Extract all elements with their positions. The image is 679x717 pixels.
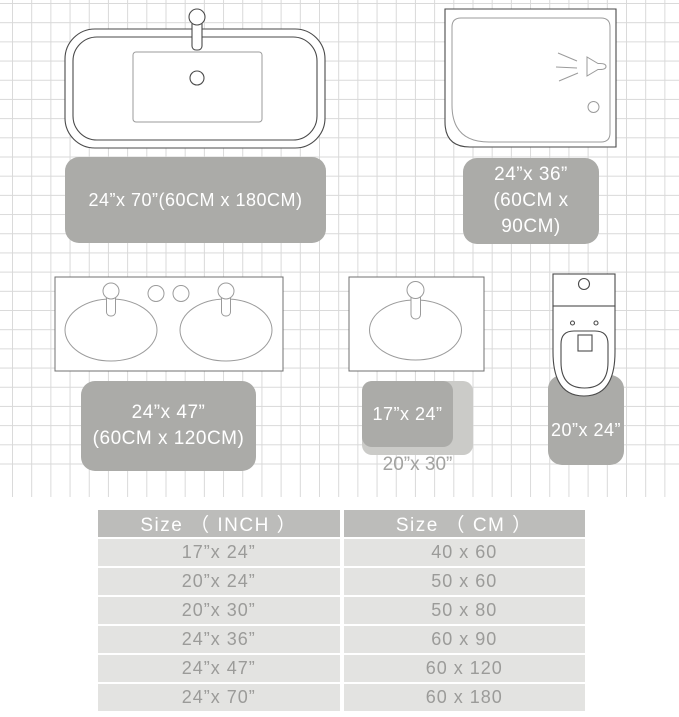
cell-inch: 24”x 70” xyxy=(98,684,340,711)
rug-24x47-label-line1: 24”x 47” xyxy=(132,400,206,426)
rug-24x36-label-line1: 24”x 36” xyxy=(494,162,568,188)
rug-24x36-label-line2: (60CM x 90CM) xyxy=(463,188,599,240)
table-row: 24”x 47” 60 x 120 xyxy=(98,655,585,682)
rug-17x24-label: 17”x 24” xyxy=(372,401,442,427)
size-table: Size （ INCH ） Size （ CM ） 17”x 24” 40 x … xyxy=(98,510,585,711)
size-table-header-row: Size （ INCH ） Size （ CM ） xyxy=(98,510,585,537)
cell-inch: 20”x 24” xyxy=(98,568,340,595)
size-table-header-inch: Size （ INCH ） xyxy=(98,510,340,537)
rug-24x36: 24”x 36” (60CM x 90CM) xyxy=(463,158,599,244)
cell-cm: 50 x 80 xyxy=(344,597,586,624)
cell-inch: 24”x 47” xyxy=(98,655,340,682)
cell-inch: 17”x 24” xyxy=(98,539,340,566)
cell-cm: 50 x 60 xyxy=(344,568,586,595)
rug-24x47: 24”x 47” (60CM x 120CM) xyxy=(81,381,256,471)
cell-cm: 60 x 90 xyxy=(344,626,586,653)
size-table-header-cm: Size （ CM ） xyxy=(344,510,586,537)
cell-inch: 24”x 36” xyxy=(98,626,340,653)
rug-20x24: 20”x 24” xyxy=(548,375,624,465)
table-row: 20”x 30” 50 x 80 xyxy=(98,597,585,624)
rug-20x30-label: 20”x 30” xyxy=(362,454,473,476)
table-row: 24”x 70” 60 x 180 xyxy=(98,684,585,711)
rug-24x47-label-line2: (60CM x 120CM) xyxy=(93,426,245,452)
table-row: 17”x 24” 40 x 60 xyxy=(98,539,585,566)
table-row: 24”x 36” 60 x 90 xyxy=(98,626,585,653)
table-row: 20”x 24” 50 x 60 xyxy=(98,568,585,595)
grid-background-tails xyxy=(0,481,679,497)
bathroom-rug-size-guide: 24”x 70”(60CM x 180CM) 24”x 36” (60CM x … xyxy=(0,0,679,717)
cell-cm: 60 x 120 xyxy=(344,655,586,682)
rug-17x24: 17”x 24” xyxy=(362,381,453,447)
cell-cm: 60 x 180 xyxy=(344,684,586,711)
cell-inch: 20”x 30” xyxy=(98,597,340,624)
rug-24x70-label: 24”x 70”(60CM x 180CM) xyxy=(88,187,302,213)
rug-24x70: 24”x 70”(60CM x 180CM) xyxy=(65,157,326,243)
cell-cm: 40 x 60 xyxy=(344,539,586,566)
rug-20x24-label: 20”x 24” xyxy=(551,417,621,443)
